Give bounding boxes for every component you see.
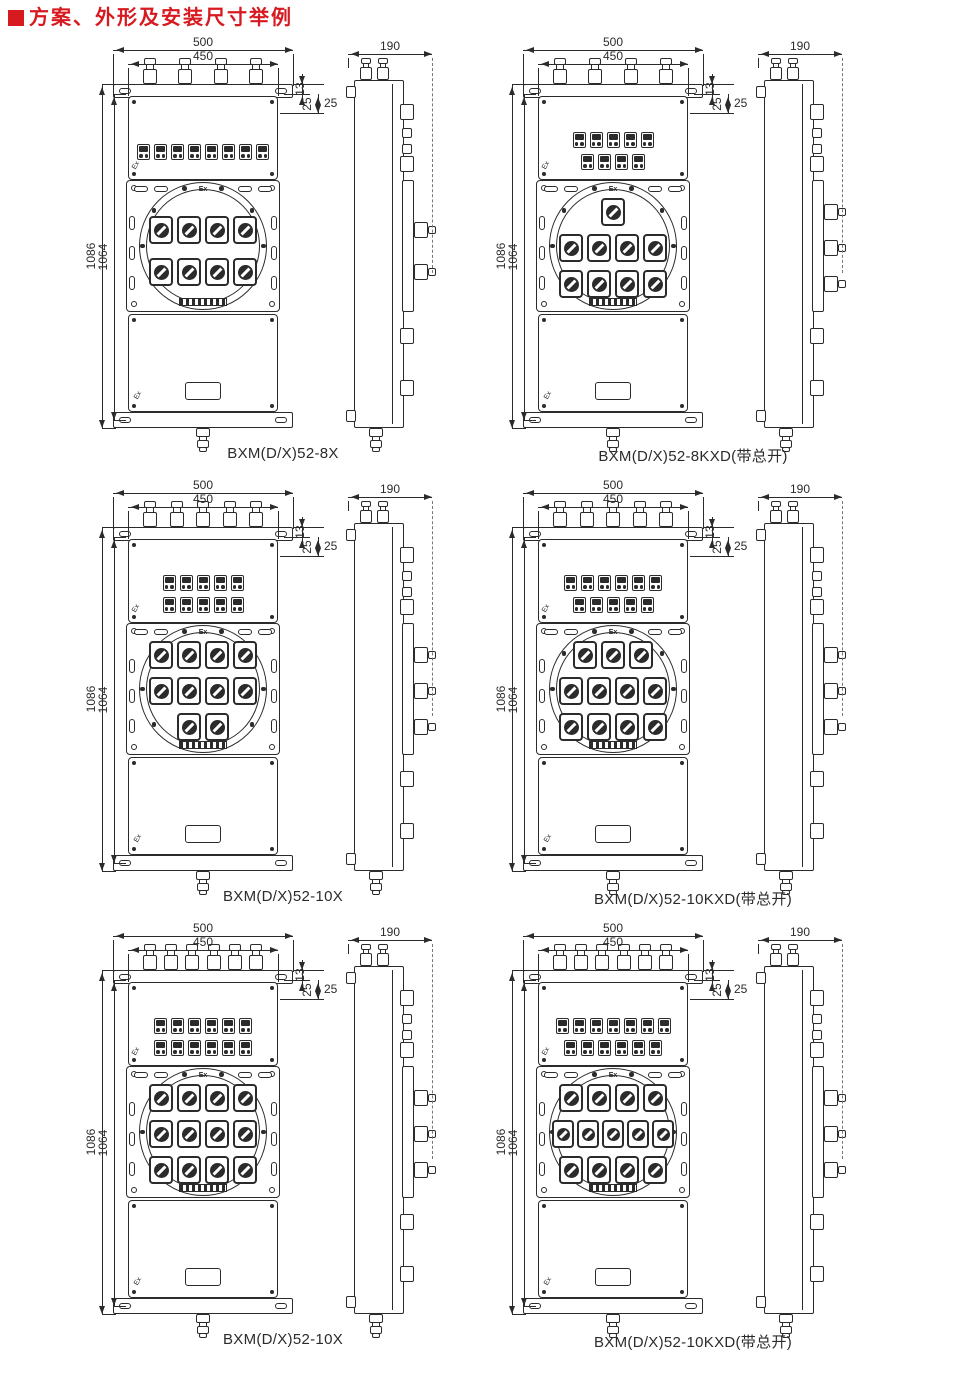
side-body: [764, 80, 814, 428]
side-operator-handle: [824, 276, 838, 292]
cable-gland-body: [787, 953, 799, 966]
dim-190-line: [348, 940, 432, 941]
hinge-block: [810, 1266, 824, 1282]
side-top-ear: [346, 529, 356, 541]
side-face-line: [392, 527, 393, 867]
side-operator-handle: [414, 1090, 428, 1106]
side-bottom-ear: [756, 410, 766, 422]
page-title: 方案、外形及安装尺寸举例: [29, 8, 293, 28]
side-button-bump: [402, 571, 412, 581]
side-operator-knob: [428, 1166, 436, 1174]
dim-arrow-icon: [348, 937, 359, 943]
side-button-bump: [402, 1014, 412, 1024]
side-cover-plate: [402, 623, 414, 755]
cable-gland-body: [770, 953, 782, 966]
side-body: [354, 523, 404, 871]
side-top-ear: [756, 86, 766, 98]
drawing-unit: ExExEx50045013252510861064190BXM(D/X)52-…: [88, 926, 478, 1369]
drawing-unit: ExExEx50045013252510861064190BXM(D/X)52-…: [88, 40, 478, 483]
cable-gland-body: [770, 67, 782, 80]
drawing-unit: ExExEx50045013252510861064190BXM(D/X)52-…: [498, 926, 888, 1369]
dim-arrow-icon: [424, 937, 435, 943]
side-view: 190: [88, 926, 478, 1369]
cable-gland-body: [377, 510, 389, 523]
side-cover-plate: [812, 180, 824, 312]
hinge-block: [810, 1042, 824, 1058]
dim-arrow-icon: [834, 494, 845, 500]
side-operator-handle: [414, 1162, 428, 1178]
side-button-bump: [402, 144, 412, 154]
side-centerline: [842, 944, 843, 1159]
cable-gland-body: [377, 953, 389, 966]
side-bottom-ear: [756, 853, 766, 865]
side-bottom-ear: [756, 1296, 766, 1308]
side-operator-knob: [838, 280, 846, 288]
title-bullet-icon: [8, 10, 24, 26]
side-button-bump: [812, 571, 822, 581]
dim-190-label: 190: [360, 40, 420, 52]
side-button-bump: [402, 128, 412, 138]
dim-arrow-icon: [758, 494, 769, 500]
drawing-unit: ExExEx50045013252510861064190BXM(D/X)52-…: [88, 483, 478, 926]
hinge-block: [810, 547, 824, 563]
side-operator-knob: [838, 723, 846, 731]
dim-arrow-icon: [348, 494, 359, 500]
hinge-block: [400, 1042, 414, 1058]
drawing-caption: BXM(D/X)52-8KXD(带总开): [498, 445, 888, 466]
drawing-caption: BXM(D/X)52-10KXD(带总开): [498, 888, 888, 909]
dim-190-label: 190: [360, 483, 420, 495]
side-view: 190: [88, 40, 478, 483]
drawing-unit: ExExEx50045013252510861064190BXM(D/X)52-…: [498, 40, 888, 483]
side-operator-handle: [824, 240, 838, 256]
ext: [348, 944, 349, 954]
ext: [758, 58, 759, 68]
drawing-caption: BXM(D/X)52-10KXD(带总开): [498, 1331, 888, 1352]
side-operator-handle: [824, 647, 838, 663]
hinge-block: [400, 547, 414, 563]
catalog-page: 方案、外形及安装尺寸举例 ExExEx500450132525108610641…: [0, 0, 980, 1374]
dim-190-label: 190: [360, 926, 420, 938]
drawing-caption: BXM(D/X)52-10X: [88, 888, 478, 905]
dim-arrow-icon: [758, 51, 769, 57]
hinge-block: [400, 1214, 414, 1230]
page-header: 方案、外形及安装尺寸举例: [8, 8, 293, 28]
cable-gland-body: [377, 67, 389, 80]
hinge-block: [400, 990, 414, 1006]
side-bottom-ear: [346, 1296, 356, 1308]
hinge-block: [400, 328, 414, 344]
hinge-block: [400, 156, 414, 172]
side-operator-handle: [414, 222, 428, 238]
side-centerline: [432, 501, 433, 716]
side-body: [354, 80, 404, 428]
side-top-ear: [756, 529, 766, 541]
side-body: [764, 523, 814, 871]
hinge-block: [810, 380, 824, 396]
dim-arrow-icon: [834, 51, 845, 57]
side-body: [764, 966, 814, 1314]
dim-190-line: [758, 54, 842, 55]
side-operator-handle: [414, 1126, 428, 1142]
ext: [348, 58, 349, 68]
side-centerline: [432, 944, 433, 1159]
hinge-block: [810, 104, 824, 120]
dim-190-line: [348, 54, 432, 55]
side-button-bump: [812, 1014, 822, 1024]
cable-gland-body: [787, 510, 799, 523]
side-cover-plate: [402, 180, 414, 312]
side-face-line: [802, 527, 803, 867]
dim-190-label: 190: [770, 483, 830, 495]
side-operator-handle: [824, 1090, 838, 1106]
dim-190-label: 190: [770, 40, 830, 52]
side-centerline: [842, 501, 843, 716]
hinge-block: [810, 599, 824, 615]
hinge-block: [400, 823, 414, 839]
side-view: 190: [498, 40, 888, 483]
side-bottom-ear: [346, 853, 356, 865]
side-view: 190: [498, 483, 888, 926]
side-body: [354, 966, 404, 1314]
ext: [758, 501, 759, 511]
side-face-line: [802, 84, 803, 424]
drawing-unit: ExExEx50045013252510861064190BXM(D/X)52-…: [498, 483, 888, 926]
side-button-bump: [812, 128, 822, 138]
dim-arrow-icon: [834, 937, 845, 943]
dim-arrow-icon: [758, 937, 769, 943]
side-operator-knob: [838, 1166, 846, 1174]
drawing-caption: BXM(D/X)52-8X: [88, 445, 478, 462]
dim-190-label: 190: [770, 926, 830, 938]
side-operator-handle: [414, 264, 428, 280]
cable-gland-body: [360, 510, 372, 523]
hinge-block: [400, 1266, 414, 1282]
dim-190-line: [758, 497, 842, 498]
hinge-block: [400, 380, 414, 396]
side-operator-handle: [824, 1162, 838, 1178]
hinge-block: [400, 599, 414, 615]
hinge-block: [400, 104, 414, 120]
side-face-line: [392, 970, 393, 1310]
hinge-block: [810, 156, 824, 172]
side-bottom-ear: [346, 410, 356, 422]
side-top-ear: [756, 972, 766, 984]
side-operator-handle: [824, 204, 838, 220]
side-operator-knob: [428, 723, 436, 731]
side-top-ear: [346, 86, 356, 98]
side-centerline: [842, 58, 843, 273]
side-button-bump: [812, 144, 822, 154]
dim-190-line: [758, 940, 842, 941]
side-operator-handle: [824, 683, 838, 699]
side-centerline: [432, 58, 433, 273]
side-operator-handle: [414, 683, 428, 699]
side-operator-handle: [824, 719, 838, 735]
side-operator-handle: [414, 719, 428, 735]
dim-arrow-icon: [424, 51, 435, 57]
ext: [348, 501, 349, 511]
side-button-bump: [812, 587, 822, 597]
dim-arrow-icon: [424, 494, 435, 500]
hinge-block: [810, 328, 824, 344]
hinge-block: [810, 1214, 824, 1230]
dim-190-line: [348, 497, 432, 498]
side-button-bump: [402, 1030, 412, 1040]
side-face-line: [802, 970, 803, 1310]
side-top-ear: [346, 972, 356, 984]
side-face-line: [392, 84, 393, 424]
hinge-block: [810, 823, 824, 839]
hinge-block: [810, 771, 824, 787]
side-view: 190: [498, 926, 888, 1369]
side-operator-handle: [414, 647, 428, 663]
side-cover-plate: [402, 1066, 414, 1198]
side-cover-plate: [812, 1066, 824, 1198]
ext: [758, 944, 759, 954]
side-operator-handle: [824, 1126, 838, 1142]
side-button-bump: [812, 1030, 822, 1040]
side-cover-plate: [812, 623, 824, 755]
cable-gland-body: [360, 953, 372, 966]
cable-gland-body: [360, 67, 372, 80]
side-view: 190: [88, 483, 478, 926]
hinge-block: [810, 990, 824, 1006]
cable-gland-body: [787, 67, 799, 80]
cable-gland-body: [770, 510, 782, 523]
side-button-bump: [402, 587, 412, 597]
dim-arrow-icon: [348, 51, 359, 57]
drawing-caption: BXM(D/X)52-10X: [88, 1331, 478, 1348]
hinge-block: [400, 771, 414, 787]
